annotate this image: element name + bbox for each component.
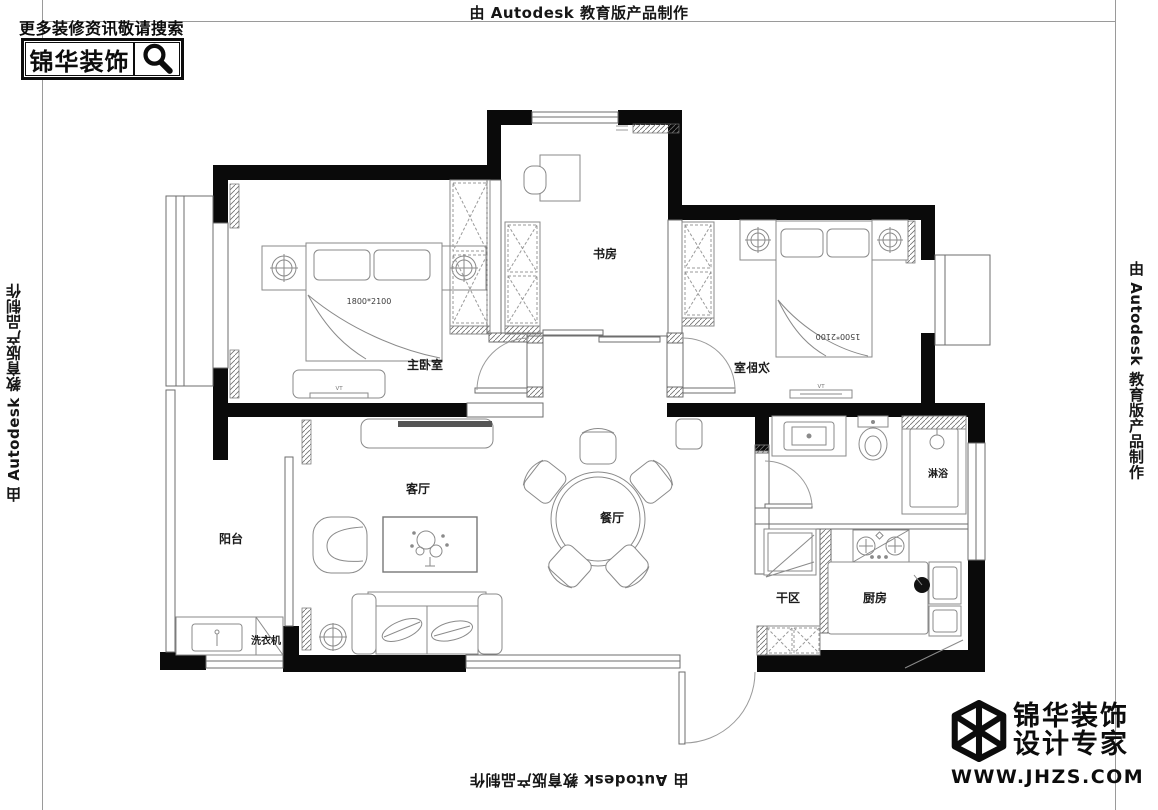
master-bedroom bbox=[262, 180, 490, 398]
tv-console-icon bbox=[293, 370, 385, 398]
bathroom bbox=[772, 416, 966, 514]
tv-label-second: TV bbox=[817, 384, 825, 390]
dining-chair-icon bbox=[580, 429, 616, 465]
room-label-shower: 淋浴 bbox=[928, 467, 949, 480]
hall-cabinet-icon bbox=[676, 419, 702, 449]
wardrobe-base bbox=[450, 326, 490, 334]
second-bedroom-door bbox=[681, 338, 735, 393]
nightstand-icon bbox=[740, 220, 776, 260]
master-bedroom-door bbox=[475, 338, 529, 393]
gas-stove-icon bbox=[853, 530, 909, 562]
wardrobe-icon bbox=[682, 222, 714, 318]
tv-console-icon bbox=[361, 419, 493, 448]
room-label-dry-area: 干区 bbox=[776, 591, 800, 605]
dimension-master-bed: 1800*2100 bbox=[347, 297, 392, 306]
dimension-second-bed: 1500*2100 bbox=[816, 332, 861, 341]
study-sliding-door bbox=[527, 330, 668, 342]
room-label-balcony: 阳台 bbox=[219, 531, 243, 546]
tv-label-master: TV bbox=[335, 386, 343, 392]
cube-logo-icon bbox=[951, 700, 1007, 762]
brand-badge: 锦华装饰 设计专家 WWW.JHZS.COM bbox=[951, 700, 1137, 788]
desk-icon bbox=[524, 155, 580, 201]
room-label-second-bedroom: 次卧室 bbox=[734, 360, 770, 375]
coffee-table-icon bbox=[383, 517, 477, 572]
dry-area-cabinet-icon bbox=[764, 529, 816, 577]
room-label-master-bedroom: 主卧室 bbox=[407, 357, 443, 372]
room-label-washing-machine: 洗衣机 bbox=[251, 634, 281, 647]
nightstand-icon bbox=[262, 246, 306, 290]
living-room bbox=[313, 419, 502, 654]
wardrobe-icon bbox=[505, 222, 540, 326]
dining-room bbox=[519, 419, 702, 593]
badge-website: WWW.JHZS.COM bbox=[951, 766, 1137, 788]
nightstand-icon bbox=[442, 246, 486, 290]
entry-door bbox=[679, 672, 755, 744]
armchair-icon bbox=[313, 517, 367, 573]
room-label-study: 书房 bbox=[593, 246, 617, 261]
room-label-kitchen: 厨房 bbox=[863, 590, 887, 605]
study bbox=[505, 155, 714, 334]
room-label-living-room: 客厅 bbox=[405, 481, 430, 496]
badge-tagline: 设计专家 bbox=[1013, 731, 1129, 759]
bathroom-door bbox=[765, 461, 812, 508]
room-label-dining-room: 餐厅 bbox=[600, 510, 624, 525]
badge-brand-name: 锦华装饰 bbox=[1013, 703, 1129, 731]
vanity-sink-icon bbox=[772, 416, 846, 456]
tv-console-icon bbox=[790, 390, 852, 398]
sofa-icon bbox=[352, 592, 502, 654]
toilet-icon bbox=[858, 416, 888, 460]
floor-plan-page: 由 Autodesk 教育版产品制作 由 Autodesk 教育版产品制作 由 … bbox=[0, 0, 1158, 810]
floor-plan-svg: 主卧室 次卧室 书房 客厅 餐厅 阳台 厨房 干区 淋浴 洗衣机 1800*21… bbox=[0, 0, 1158, 810]
floor-lamp-icon bbox=[319, 623, 347, 651]
shower-icon bbox=[902, 416, 966, 514]
nightstand-icon bbox=[872, 220, 908, 260]
